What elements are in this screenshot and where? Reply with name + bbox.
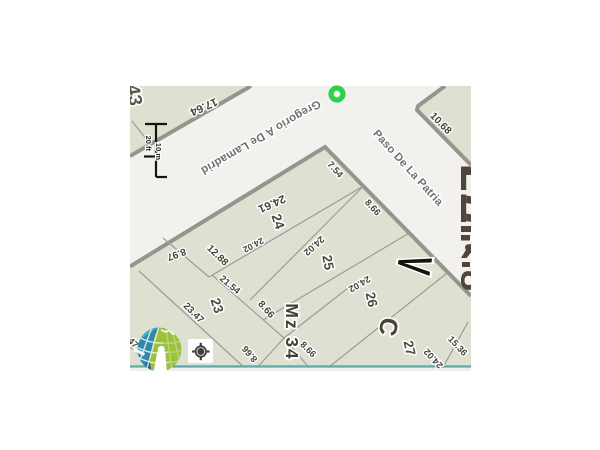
svg-text:25: 25 [319,254,336,272]
svg-text:43: 43 [121,83,145,107]
svg-text:10 m: 10 m [154,143,163,160]
svg-text:Mz 34: Mz 34 [282,303,302,360]
svg-text:27: 27 [401,339,419,357]
svg-text:20 ft: 20 ft [144,136,153,152]
